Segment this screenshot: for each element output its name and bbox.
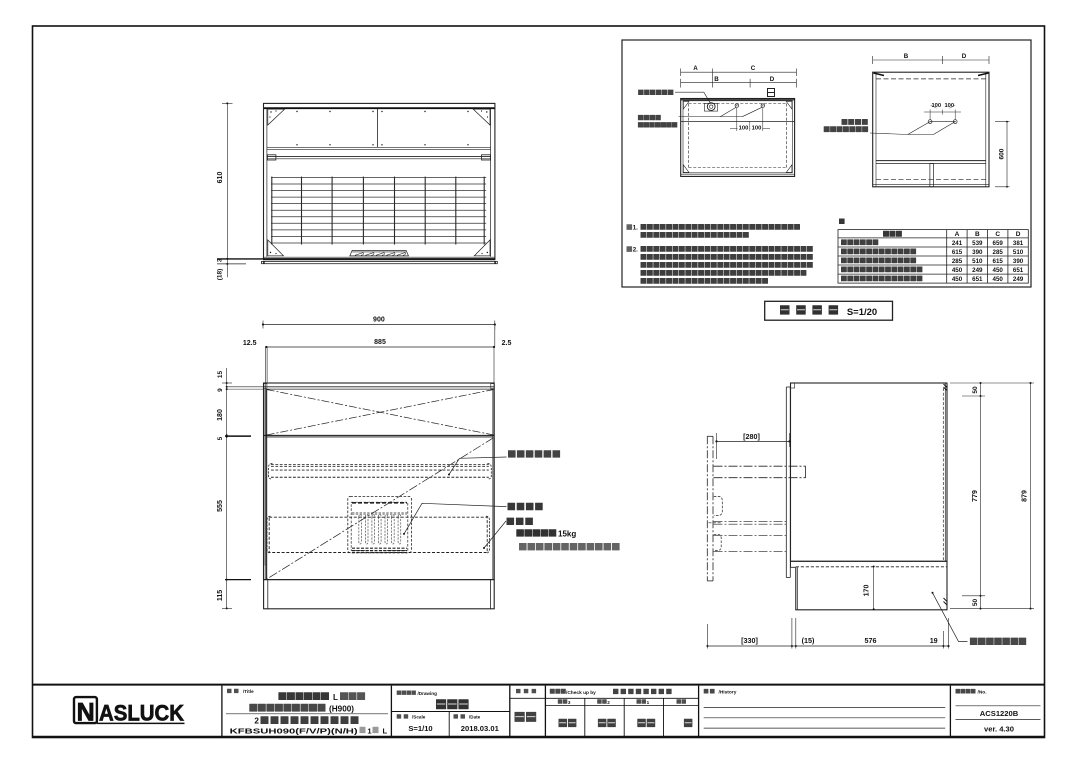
svg-text:D: D: [962, 53, 967, 60]
svg-text:555: 555: [217, 500, 224, 512]
svg-text:115: 115: [217, 590, 224, 601]
svg-text:(18): (18): [217, 269, 224, 281]
svg-text:D: D: [1016, 231, 1021, 238]
svg-text:B: B: [714, 76, 719, 83]
svg-text:5: 5: [217, 436, 224, 440]
svg-text:C: C: [751, 65, 756, 72]
svg-text:2.: 2.: [633, 247, 638, 254]
svg-text:180: 180: [217, 409, 224, 421]
svg-text:/Drawing: /Drawing: [418, 691, 438, 696]
svg-text:(15): (15): [802, 636, 815, 645]
svg-text:/No.: /No.: [978, 690, 987, 696]
svg-text:1: 1: [647, 700, 650, 705]
svg-text:[330]: [330]: [741, 636, 758, 645]
svg-text:450: 450: [993, 276, 1004, 283]
svg-text:659: 659: [993, 240, 1004, 247]
svg-text:/Scale: /Scale: [412, 715, 426, 720]
svg-text:A: A: [693, 65, 698, 72]
svg-text:B: B: [904, 53, 909, 60]
svg-text:510: 510: [972, 258, 983, 265]
svg-text:651: 651: [1013, 267, 1024, 274]
svg-text:100: 100: [752, 125, 762, 131]
svg-text:50: 50: [972, 599, 979, 607]
svg-text:900: 900: [373, 317, 385, 324]
svg-text:510: 510: [1013, 249, 1024, 256]
svg-text:[280]: [280]: [743, 432, 760, 441]
svg-text:610: 610: [217, 172, 224, 184]
svg-text:15: 15: [217, 371, 224, 379]
svg-text:3: 3: [217, 258, 224, 262]
svg-text:2.5: 2.5: [502, 340, 512, 347]
svg-text:241: 241: [952, 240, 963, 247]
svg-text:50: 50: [972, 386, 979, 394]
svg-text:S=1/10: S=1/10: [408, 724, 432, 733]
svg-text:381: 381: [1013, 240, 1024, 247]
svg-text:ASLUCK: ASLUCK: [99, 700, 184, 725]
svg-text:2018.03.01: 2018.03.01: [461, 724, 500, 733]
svg-text:1.: 1.: [633, 225, 638, 232]
svg-text:249: 249: [972, 267, 983, 274]
svg-text:450: 450: [952, 267, 963, 274]
svg-text:450: 450: [993, 267, 1004, 274]
svg-text:/History: /History: [719, 690, 737, 696]
svg-text:885: 885: [374, 339, 386, 346]
svg-text:(H900): (H900): [329, 704, 354, 713]
svg-text:3: 3: [568, 700, 571, 705]
svg-text:KFBSUH090(F/V/P)(N/H): KFBSUH090(F/V/P)(N/H): [230, 726, 359, 735]
svg-text:615: 615: [993, 258, 1004, 265]
svg-text:/Check up by: /Check up by: [566, 690, 596, 696]
svg-text:879: 879: [1022, 490, 1029, 502]
svg-text:15kg: 15kg: [558, 530, 576, 539]
svg-text:D: D: [770, 76, 775, 83]
svg-text:390: 390: [1013, 258, 1024, 265]
svg-text:/Date: /Date: [469, 715, 481, 720]
svg-text:615: 615: [952, 249, 963, 256]
svg-text:2: 2: [254, 716, 259, 725]
svg-text:2: 2: [607, 700, 610, 705]
svg-text:B: B: [975, 231, 980, 238]
svg-text:390: 390: [972, 249, 983, 256]
svg-text:651: 651: [972, 276, 983, 283]
svg-text:600: 600: [999, 148, 1006, 159]
svg-text:100: 100: [739, 125, 749, 131]
svg-text:S=1/20: S=1/20: [847, 307, 877, 318]
svg-text:779: 779: [972, 490, 979, 502]
svg-text:C: C: [995, 231, 1000, 238]
svg-text:L: L: [383, 726, 388, 735]
svg-text:L: L: [333, 693, 338, 702]
svg-text:/Title: /Title: [243, 689, 254, 694]
svg-text:N: N: [77, 699, 95, 727]
svg-text:539: 539: [972, 240, 983, 247]
svg-text:19: 19: [930, 636, 938, 645]
svg-text:9: 9: [217, 388, 224, 392]
svg-text:170: 170: [864, 585, 871, 597]
svg-text:285: 285: [952, 258, 963, 265]
svg-text:450: 450: [952, 276, 963, 283]
svg-text:249: 249: [1013, 276, 1024, 283]
svg-text:ver. 4.30: ver. 4.30: [984, 725, 1014, 734]
svg-text:ACS1220B: ACS1220B: [980, 709, 1019, 718]
svg-text:12.5: 12.5: [243, 340, 257, 347]
svg-text:576: 576: [865, 636, 877, 645]
svg-text:285: 285: [993, 249, 1004, 256]
svg-text:A: A: [955, 231, 960, 238]
